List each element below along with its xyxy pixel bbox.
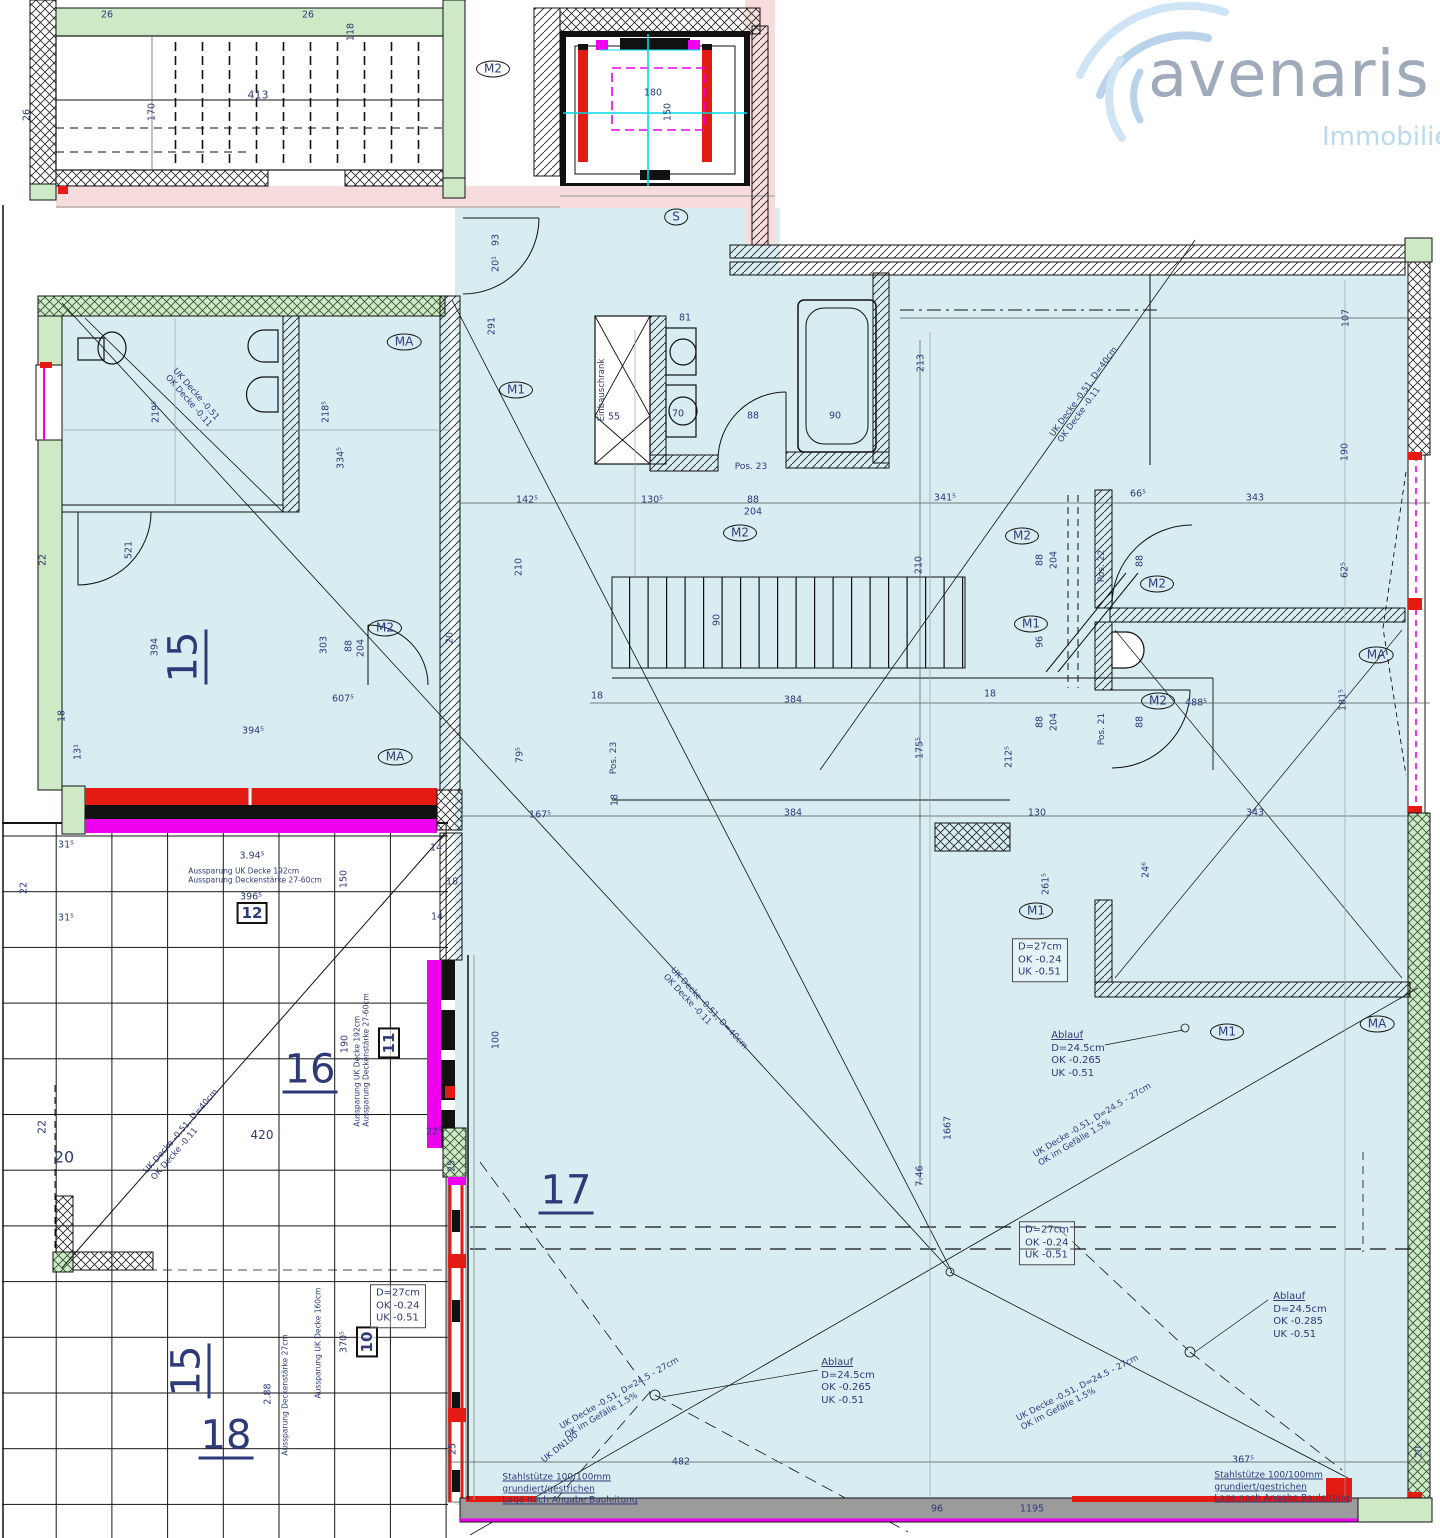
anno-line: D=27cm [376,1287,420,1300]
dim-label-88: 88 [747,411,759,422]
auss-line: Aussparung Deckenstärke 27cm [280,1334,289,1455]
ablauf-line: UK -0.51 [821,1395,875,1408]
dim-label-100: 100 [491,1031,502,1049]
floorplan-drawing [0,0,1440,1538]
auss-note: Aussparung Deckenstärke 27cm [280,1334,289,1455]
dim-label-521: 521 [124,541,135,559]
dim-label-18: 18 [610,794,621,806]
dim-label-18: 18 [984,689,996,700]
dim-label-31-: 31⁵ [58,913,74,924]
steel-line: Lage nach Angabe Bauleitung [502,1496,637,1508]
dim-label-90: 90 [829,411,841,422]
dim-label-343: 343 [1246,493,1264,504]
dim-label-18: 18 [57,710,68,722]
ablauf-line: Ablauf [821,1357,875,1370]
box-label-11: 11 [378,1028,400,1059]
dim-label-190: 190 [340,1035,351,1053]
marker-label-ma: MA [1360,1016,1395,1033]
anno-line: UK -0.51 [1018,966,1062,979]
dim-label-394: 394 [150,638,161,656]
dim-label-334-: 334⁵ [336,447,347,469]
anno-line: OK -0.24 [376,1300,420,1313]
ablauf-line: OK -0.285 [1273,1316,1327,1329]
dim-label-394-: 394⁵ [242,726,264,737]
dim-label-22-: 22⁵ [426,1127,442,1138]
ablauf-line: Ablauf [1051,1030,1105,1043]
ablauf-line: Ablauf [1273,1291,1327,1304]
room-label-15: 15 [163,630,208,685]
marker-label-ma: MA [1359,647,1394,664]
ablauf-line: D=24.5cm [1051,1043,1105,1056]
pos-label-pos-23: Pos. 23 [609,742,619,774]
dim-label-14: 14 [431,912,443,923]
box-label-10: 10 [356,1327,378,1358]
dim-label-219-: 219⁵ [151,401,162,423]
marker-label-m2: M2 [476,61,510,78]
elevator-shaft [443,0,775,294]
marker-label-ma: MA [387,334,422,351]
dim-label-88: 88 [1135,555,1146,567]
marker-label-m2: M2 [723,525,757,542]
auss-line: Aussparung Deckenstärke 27-60cm [188,876,322,885]
dim-label-88: 88 [747,495,759,506]
dim-label-210: 210 [914,556,925,574]
dim-label-343: 343 [1246,808,1264,819]
anno-line: UK -0.51 [376,1312,420,1325]
dim-label-210: 210 [514,558,525,576]
ablauf-line: D=24.5cm [821,1370,875,1383]
dim-label-384: 384 [784,808,802,819]
room-label-17: 17 [539,1170,594,1215]
anno-line: UK -0.51 [1025,1249,1069,1262]
dim-label-482: 482 [672,1457,690,1468]
dim-label-107: 107 [1341,309,1352,327]
dim-label-18: 18 [446,877,458,888]
dim-label-181-: 181⁵ [1338,689,1349,711]
dim-label-212-: 212⁵ [1004,746,1015,768]
ablauf-line: OK -0.265 [1051,1055,1105,1068]
dim-label-291: 291 [487,317,498,335]
dim-label-55: 55 [608,412,620,423]
box-label-12: 12 [237,902,268,924]
dim-label-130-: 130⁵ [641,495,663,506]
room-label-15: 15 [166,1344,211,1399]
dim-label-70: 70 [672,409,684,420]
anno-line: D=27cm [1018,941,1062,954]
logo-brand: avenaris [1148,38,1430,112]
ablauf-line: D=24.5cm [1273,1304,1327,1317]
dim-label-204: 204 [1049,713,1060,731]
dim-label-79-: 79⁵ [515,747,526,763]
sanitary-fixtures [78,300,1144,668]
anno-line: OK -0.24 [1025,1237,1069,1250]
marker-label-s: S [664,209,688,226]
dim-label-62-: 62⁵ [1340,562,1351,578]
pos-label-pos-21: Pos. 21 [1097,713,1107,745]
dim-label-20-: 20¹ [491,256,502,272]
room-label-16: 16 [283,1049,338,1094]
dim-label-25: 25 [447,1160,458,1172]
dim-label-118: 118 [346,23,357,41]
auss-note: Aussparung UK Decke 192cmAussparung Deck… [353,993,372,1127]
dim-label-413: 413 [248,89,269,102]
ablauf-note: AblaufD=24.5cmOK -0.265UK -0.51 [821,1357,875,1407]
anno-line: OK -0.24 [1018,954,1062,967]
anno-line: D=27cm [1025,1224,1069,1237]
dim-label-93: 93 [491,234,502,246]
steel-line: Stahlstütze 100/100mm [502,1472,637,1484]
dim-label-2-88: 2.88 [263,1383,274,1404]
dim-label-130: 130 [1028,808,1046,819]
dim-label-261-: 261⁵ [1041,873,1052,895]
dim-label-88: 88 [1035,554,1046,566]
dim-label-20: 20 [1414,1446,1425,1458]
dim-label-3-94-: 3.94⁵ [240,851,265,862]
room-label-18: 18 [199,1415,254,1460]
dim-label-81: 81 [679,313,691,324]
dim-label-213: 213 [916,354,927,372]
dim-label-24-: 24⁶ [1141,862,1152,878]
anno-note: D=27cmOK -0.24UK -0.51 [1012,938,1068,982]
dim-label-96: 96 [931,1504,943,1515]
dim-label-26: 26 [22,109,33,121]
dim-label-370-: 370⁵ [339,1331,350,1353]
auss-line: Aussparung UK Decke 160cm [313,1288,322,1399]
dim-label-25: 25 [448,1443,459,1455]
dim-label-66-: 66⁵ [1130,489,1146,500]
dim-label-26: 26 [101,10,113,21]
dim-label-488-: 488⁵ [1185,698,1207,709]
dim-label-13-: 13¹ [73,744,84,760]
steel-line: grundiert/gestrichen [502,1484,637,1496]
dim-label-88: 88 [1135,716,1146,728]
logo-subtitle: Immobilien [1322,122,1440,152]
ablauf-line: OK -0.265 [821,1382,875,1395]
steel-note: Stahlstütze 100/100mmgrundiert/gestriche… [502,1472,637,1507]
diag-note: Einbauschrank [597,359,607,422]
auss-note: Aussparung UK Decke 192cmAussparung Deck… [188,867,322,886]
dim-label-22: 22 [38,554,49,566]
marker-label-m2: M2 [1140,576,1174,593]
dim-label-7-46: 7.46 [915,1165,926,1186]
auss-line: Aussparung UK Decke 192cm [188,867,322,876]
dim-label-204: 204 [744,507,762,518]
anno-note: D=27cmOK -0.24UK -0.51 [1019,1221,1075,1265]
auss-note: Aussparung UK Decke 160cm [313,1288,322,1399]
dim-label-26: 26 [302,10,314,21]
dim-label-607-: 607⁵ [332,694,354,705]
dim-label-420: 420 [251,1128,274,1142]
steel-line: Lage nach Angabe Bauleitung [1214,1494,1349,1506]
dim-label-88: 88 [1035,716,1046,728]
pos-label-pos-23: Pos. 23 [735,462,767,472]
dim-label-218-: 218⁵ [321,401,332,423]
anno-note: D=27cmOK -0.24UK -0.51 [370,1284,426,1328]
dim-label-204: 204 [356,639,367,657]
pos-label-pos-22: Pos. 22 [1097,550,1107,582]
marker-label-ma: MA [378,749,413,766]
ablauf-note: AblaufD=24.5cmOK -0.285UK -0.51 [1273,1291,1327,1341]
marker-label-m2: M2 [1141,693,1175,710]
marker-label-m1: M1 [1019,903,1053,920]
dim-label-88: 88 [344,640,355,652]
marker-label-m1: M1 [1014,616,1048,633]
ablauf-line: UK -0.51 [1051,1068,1105,1081]
steel-note: Stahlstütze 100/100mmgrundiert/gestriche… [1214,1470,1349,1505]
dim-label-22: 22 [19,882,30,894]
dim-label-175-: 175⁵ [915,737,926,759]
marker-label-m1: M1 [499,382,533,399]
ablauf-note: AblaufD=24.5cmOK -0.265UK -0.51 [1051,1030,1105,1080]
auss-line: Aussparung Deckenstärke 27-60cm [362,993,371,1127]
dim-label-384: 384 [784,695,802,706]
staircase-central [612,573,1213,800]
dim-label-142-: 142⁵ [516,495,538,506]
dim-label-150: 150 [663,103,674,121]
dim-label-190: 190 [1340,443,1351,461]
marker-label-m2: M2 [1005,528,1039,545]
auss-line: Aussparung UK Decke 192cm [353,993,362,1127]
dim-label-170: 170 [147,103,158,121]
dim-label-367-: 367⁵ [1232,1455,1254,1466]
diag-line: Einbauschrank [597,359,607,422]
dim-label-31-: 31⁵ [58,840,74,851]
marker-label-m1: M1 [1210,1024,1244,1041]
dim-label-1667: 1667 [943,1116,954,1140]
ablauf-line: UK -0.51 [1273,1329,1327,1342]
dim-label-14: 14 [430,843,442,854]
dim-label-20: 20 [54,1148,74,1167]
dim-label-396-: 396⁵ [240,892,262,903]
dim-label-180: 180 [644,88,662,99]
dim-label-341-: 341⁵ [934,493,956,504]
dim-label-1195: 1195 [1020,1504,1044,1515]
marker-label-m2: M2 [368,620,402,637]
dim-label-18: 18 [591,691,603,702]
dim-label-204: 204 [1049,551,1060,569]
dim-label-20: 20 [445,632,456,644]
floorplan-page: avenaris Immobilien 26264131181702618015… [0,0,1440,1538]
dim-label-150: 150 [339,870,350,888]
dim-label-303: 303 [319,636,330,654]
steel-line: Stahlstütze 100/100mm [1214,1470,1349,1482]
dim-label-167-: 167⁵ [529,810,551,821]
dim-label-96: 96 [1035,636,1046,648]
dim-label-22: 22 [36,1120,49,1134]
dim-label-90: 90 [712,614,723,626]
logo: avenaris Immobilien [1060,0,1440,170]
steel-line: grundiert/gestrichen [1214,1482,1349,1494]
